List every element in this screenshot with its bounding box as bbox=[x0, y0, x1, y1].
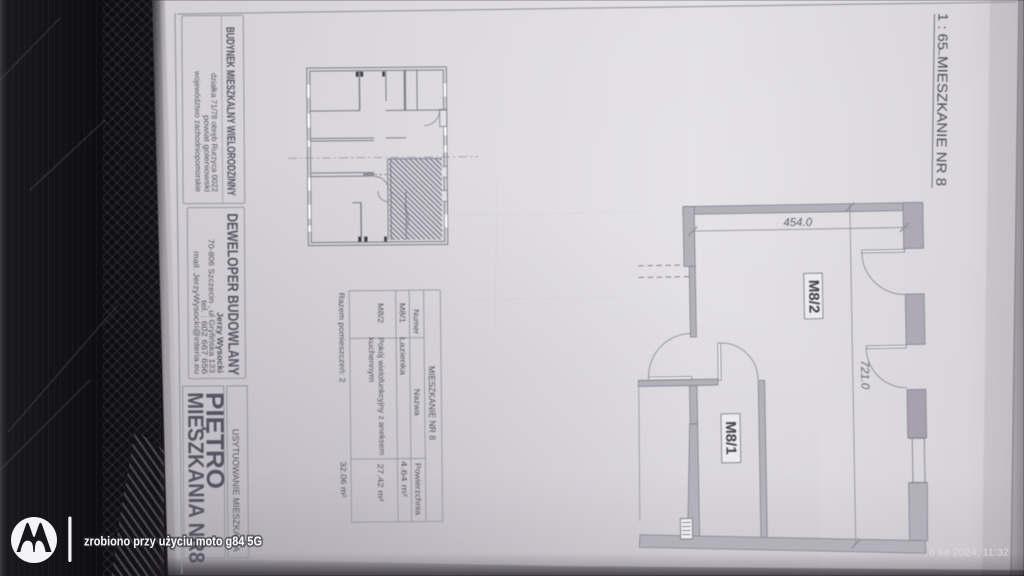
svg-text:6 lut 2024, 11:32: 6 lut 2024, 11:32 bbox=[929, 547, 1009, 559]
svg-text:zrobiono przy użyciu moto g84: zrobiono przy użyciu moto g84 5G bbox=[84, 535, 262, 549]
